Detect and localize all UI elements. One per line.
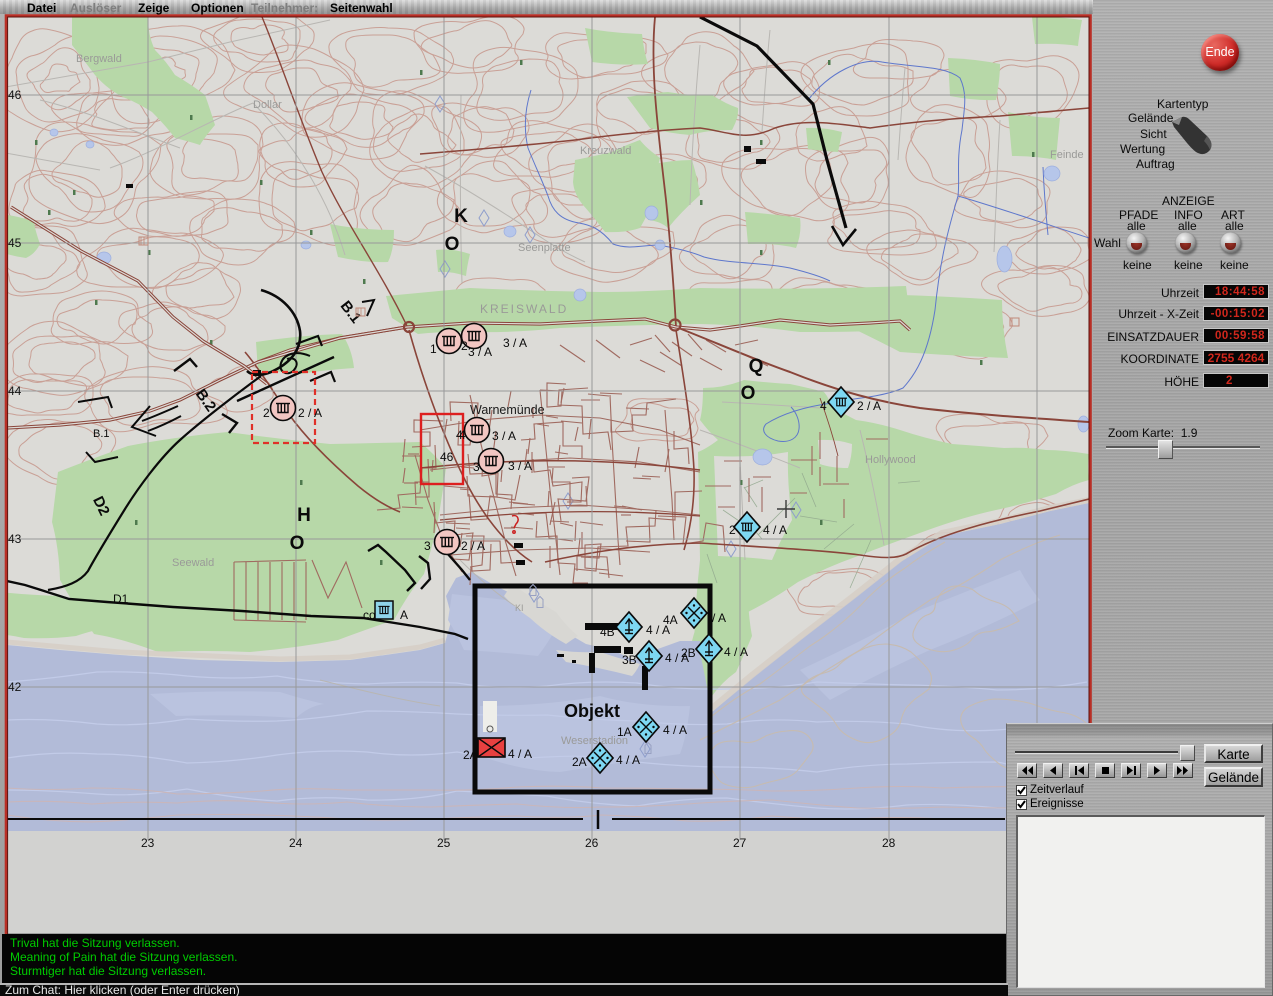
svg-text:Feinde: Feinde (1050, 149, 1084, 161)
svg-text:2 / A: 2 / A (857, 399, 881, 413)
svg-text:Warnemünde: Warnemünde (470, 403, 545, 417)
svg-text:28: 28 (882, 836, 896, 850)
svg-text:2A: 2A (463, 748, 478, 762)
svg-text:2: 2 (729, 523, 736, 537)
svg-text:Bergwald: Bergwald (76, 53, 122, 65)
svg-text:Seenplatte: Seenplatte (518, 242, 571, 254)
svg-text:2B: 2B (681, 646, 696, 660)
svg-text:46: 46 (440, 450, 454, 464)
svg-text:2A: 2A (572, 755, 587, 769)
svg-text:4 / A: 4 / A (763, 523, 787, 537)
svg-text:3B: 3B (622, 653, 637, 667)
svg-text:42: 42 (8, 680, 22, 694)
svg-text:Hollywood: Hollywood (865, 454, 916, 466)
svg-text:2 / A: 2 / A (298, 406, 322, 420)
svg-text:3 / A: 3 / A (508, 459, 532, 473)
svg-text:27: 27 (733, 836, 747, 850)
svg-text:45: 45 (8, 236, 22, 250)
svg-text:4: 4 (459, 428, 466, 442)
svg-text:1A: 1A (617, 725, 632, 739)
svg-text:Objekt: Objekt (564, 701, 620, 721)
svg-text:25: 25 (437, 836, 451, 850)
svg-text:H: H (297, 505, 311, 526)
svg-text:4A: 4A (663, 613, 678, 627)
svg-text:3 / A: 3 / A (468, 345, 492, 359)
svg-text:2: 2 (461, 339, 468, 353)
svg-text:Kreuzwald: Kreuzwald (580, 145, 631, 157)
svg-text:23: 23 (141, 836, 155, 850)
svg-text:44: 44 (8, 384, 22, 398)
svg-text:co: co (363, 608, 376, 622)
svg-text:4B: 4B (600, 625, 615, 639)
svg-text:46: 46 (8, 88, 22, 102)
svg-text:O: O (290, 533, 305, 554)
svg-text:4: 4 (820, 399, 827, 413)
svg-text:K: K (454, 206, 468, 227)
svg-text:2 / A: 2 / A (461, 539, 485, 553)
svg-text:3: 3 (424, 539, 431, 553)
svg-text:3: 3 (473, 460, 480, 474)
svg-text:O: O (741, 383, 756, 404)
svg-text:3 / A: 3 / A (503, 336, 527, 350)
svg-text:3 / A: 3 / A (492, 429, 516, 443)
svg-text:D1: D1 (113, 592, 129, 606)
svg-text:KI: KI (515, 603, 524, 613)
svg-text:24: 24 (289, 836, 303, 850)
svg-text:B.1: B.1 (93, 428, 110, 440)
svg-text:O: O (445, 234, 460, 255)
svg-text:4 / A: 4 / A (663, 723, 687, 737)
svg-text:Dollar: Dollar (253, 99, 282, 111)
svg-text:Seewald: Seewald (172, 557, 214, 569)
svg-text:Q: Q (749, 356, 764, 377)
svg-text:43: 43 (8, 532, 22, 546)
svg-text:1: 1 (430, 342, 437, 356)
svg-text:4 / A: 4 / A (508, 747, 532, 761)
svg-text:4 / A: 4 / A (724, 645, 748, 659)
svg-text:26: 26 (585, 836, 599, 850)
svg-text:A: A (400, 608, 408, 622)
svg-text:4 / A: 4 / A (616, 753, 640, 767)
svg-text:2: 2 (263, 406, 270, 420)
svg-text:KREISWALD: KREISWALD (480, 302, 568, 316)
svg-text:/ A: / A (712, 611, 726, 625)
